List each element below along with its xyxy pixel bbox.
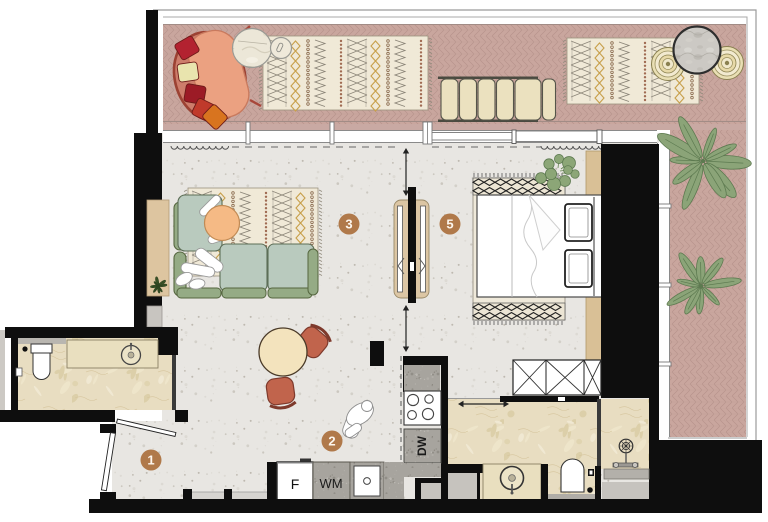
svg-text:WM: WM bbox=[319, 476, 342, 491]
svg-text:2: 2 bbox=[328, 434, 335, 449]
svg-text:3: 3 bbox=[345, 217, 352, 232]
svg-text:1: 1 bbox=[147, 453, 154, 468]
svg-text:F: F bbox=[291, 476, 300, 492]
svg-text:DW: DW bbox=[415, 435, 429, 456]
svg-text:5: 5 bbox=[446, 217, 453, 232]
